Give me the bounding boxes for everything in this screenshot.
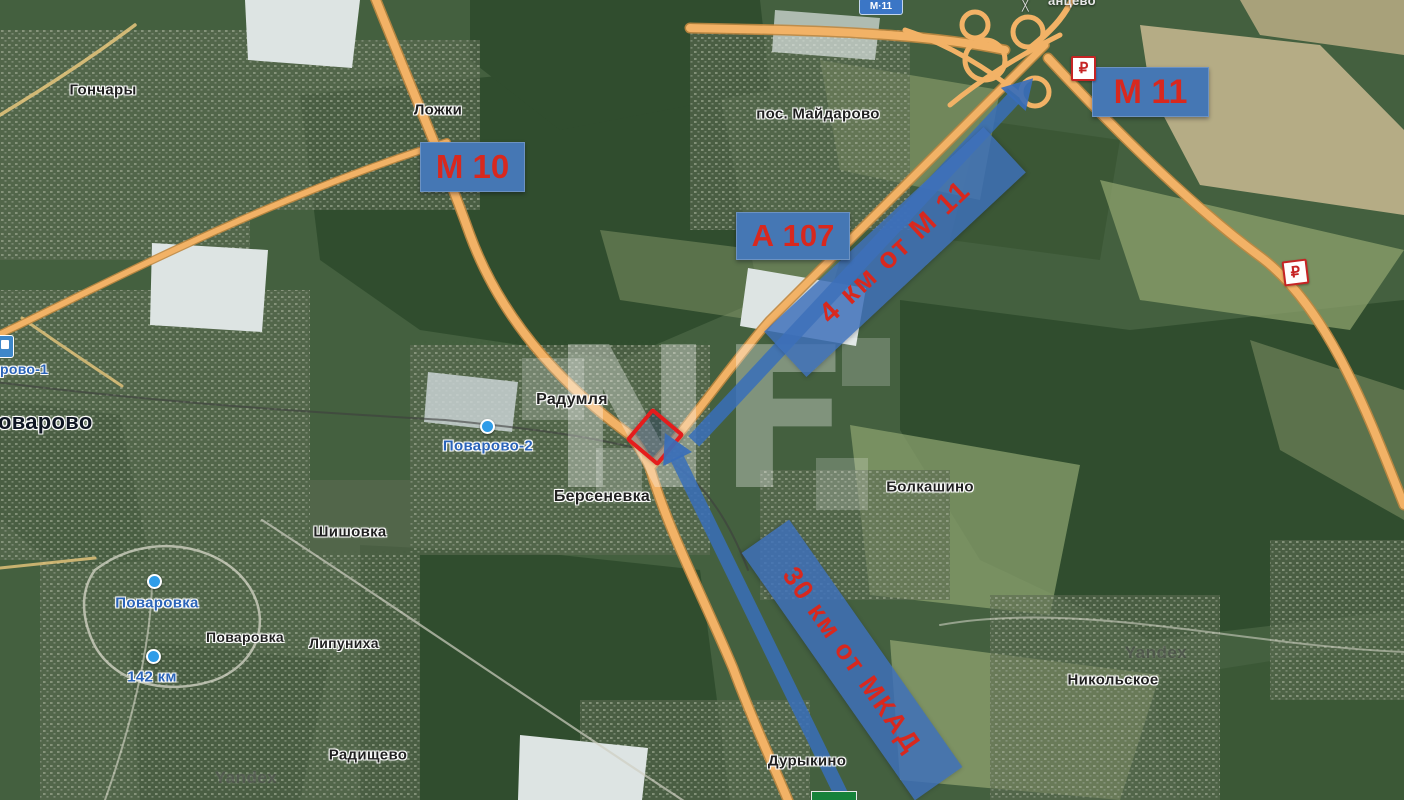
place-label-povarovo-partial: оварово [0, 409, 93, 435]
place-label-nikolskoye: Никольское [1067, 672, 1158, 689]
m11-road-shield: М·11 [859, 0, 903, 15]
road-badge-m11-label: М 11 [1114, 73, 1188, 112]
place-label-gonchary: Гончары [69, 82, 136, 99]
place-label-durykino: Дурыкино [768, 753, 846, 770]
railway-station-icon[interactable] [0, 335, 14, 358]
place-label-povarovka-b: Поваровка [206, 629, 284, 645]
place-label-povarovo1-partial: рово-1 [0, 361, 48, 377]
place-label-top-partial: анцево [1048, 0, 1096, 8]
road-badge-m11: М 11 [1092, 67, 1209, 117]
place-label-lozhki: Ложки [414, 102, 462, 119]
satellite-map-view[interactable]: NF 4 км от М 11 30 км от МКАД М 10 А 107… [0, 0, 1404, 800]
place-label-bolkashino: Болкашино [886, 479, 974, 496]
road-badge-m10: М 10 [420, 142, 525, 192]
place-label-povarovo2: Поварово-2 [443, 438, 533, 455]
yandex-watermark: Yandex [215, 768, 278, 788]
map-point-142km[interactable] [146, 649, 161, 664]
place-label-radishchevo: Радищево [329, 747, 407, 764]
place-label-bersenevka: Берсеневка [554, 488, 650, 506]
road-badge-a107-label: А 107 [752, 218, 835, 254]
place-label-shishovka: Шишовка [313, 524, 386, 541]
quarry-icon: ╳ [1022, 0, 1029, 12]
map-point-povarovo2[interactable] [480, 419, 495, 434]
place-label-142km: 142 км [127, 669, 177, 686]
place-label-lipunikha: Липуниха [309, 635, 379, 651]
road-badge-a107: А 107 [736, 212, 850, 260]
yandex-watermark: Yandex [1125, 643, 1188, 663]
place-label-radumlya: Радумля [536, 391, 608, 409]
toll-ruble-icon: ₽ [1071, 56, 1096, 81]
map-point-povarovka[interactable] [147, 574, 162, 589]
toll-ruble-icon: ₽ [1282, 259, 1310, 287]
place-label-maydarovo: пос. Майдарово [756, 106, 880, 123]
place-label-povarovka-blue: Поваровка [115, 595, 198, 612]
road-sign-partial [811, 791, 857, 800]
road-badge-m10-label: М 10 [436, 148, 509, 186]
